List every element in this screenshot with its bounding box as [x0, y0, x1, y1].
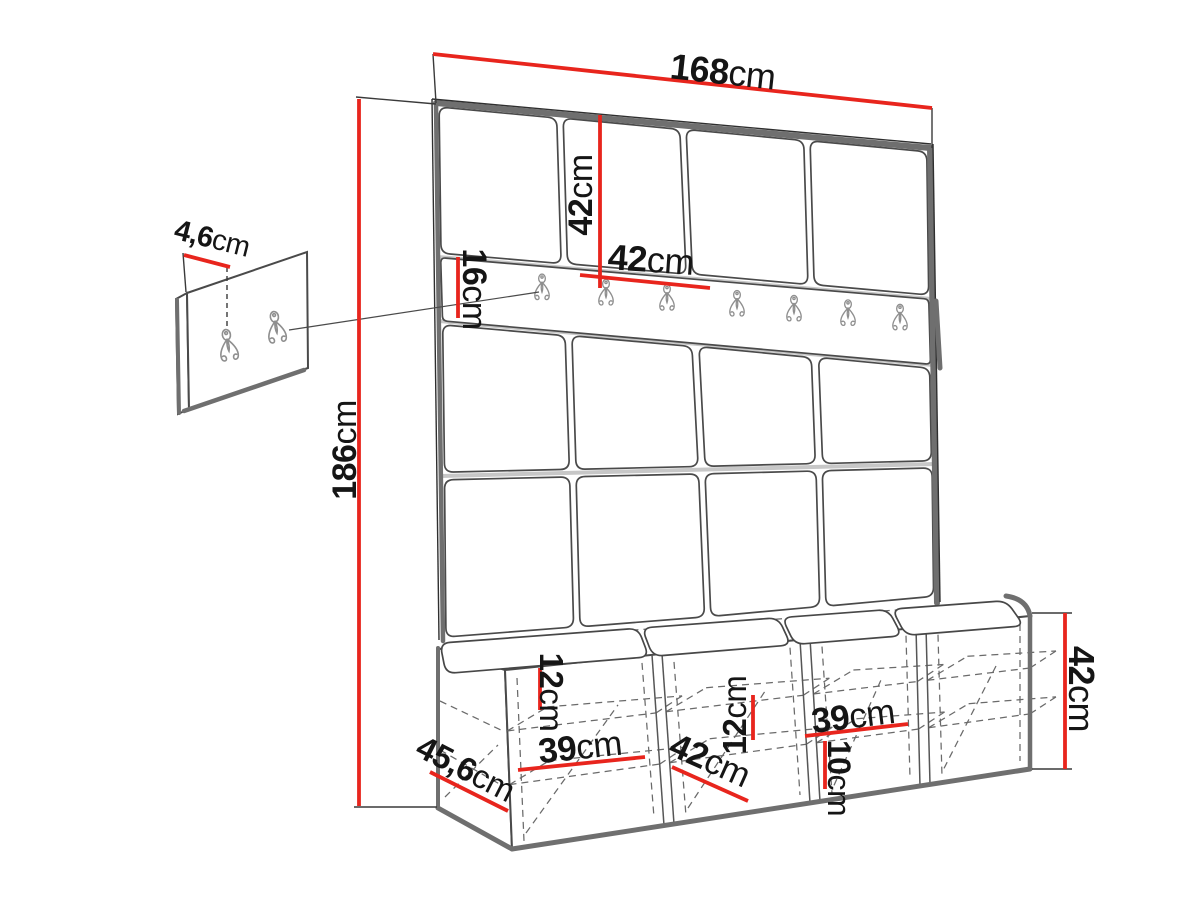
upholstered-wall-panel	[445, 477, 574, 636]
side-hook-panel	[176, 252, 308, 414]
upholstered-wall-panel	[576, 474, 704, 626]
ext-side-thickness	[183, 253, 186, 292]
ext-total-width-left	[433, 54, 436, 103]
shelf-depth-line	[1030, 697, 1056, 714]
dim-label-total-height: 186cm	[326, 400, 364, 500]
dim-label-plinth-height: 10cm	[821, 740, 857, 816]
side-panel-front-face	[187, 252, 308, 409]
dim-label-shelf-gap-1: 12cm	[534, 653, 571, 732]
upholstered-wall-panel	[699, 347, 815, 466]
shelf-depth-line	[1030, 651, 1056, 668]
dim-label-rail-height: 16cm	[455, 248, 493, 329]
upholstered-wall-panel	[819, 358, 931, 463]
dim-label-shelf-gap-2: 12cm	[716, 676, 753, 755]
furniture-dimension-diagram: 168cm 42cm 42cm 16cm 186cm 4,6cm 45,6cm …	[0, 0, 1200, 899]
upholstered-wall-panel	[686, 130, 807, 284]
dim-label-bench-height: 42cm	[1062, 646, 1103, 732]
dim-label-panel-height: 42cm	[562, 154, 600, 235]
upholstered-wall-panel	[810, 142, 928, 295]
upholstered-wall-panel	[439, 108, 561, 263]
upholstered-wall-panel	[443, 326, 569, 472]
dim-label-total-width: 168cm	[668, 45, 777, 97]
upholstered-wall-panel	[822, 468, 933, 605]
dim-label-panel-width: 42cm	[607, 236, 696, 283]
side-panel-left-edge	[177, 300, 179, 413]
wall-panel-grid	[439, 108, 933, 637]
wardrobe-panel-wall	[432, 99, 940, 641]
upholstered-wall-panel	[705, 471, 819, 615]
upholstered-wall-panel	[572, 336, 698, 469]
ext-total-height-top	[356, 97, 436, 104]
